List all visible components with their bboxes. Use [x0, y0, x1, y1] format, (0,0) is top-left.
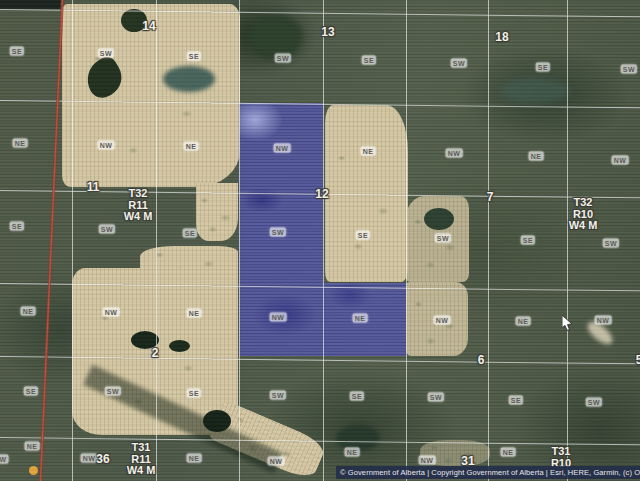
section-number: 2 — [152, 347, 159, 359]
quarter-section-label: SE — [187, 389, 201, 398]
quarter-section-label: SW — [270, 391, 286, 400]
quarter-section-label: NE — [345, 448, 360, 457]
quarter-section-label: NW — [612, 156, 629, 165]
quarter-section-label: NE — [187, 309, 202, 318]
quarter-section-label: NW — [81, 454, 98, 463]
quarter-section-label: SW — [275, 54, 291, 63]
quarter-section-label: NW — [419, 456, 436, 465]
quarter-section-label: NW — [434, 316, 451, 325]
satellite-map-viewport[interactable]: SESWSESWSESWSESWNENWNENWNENWNENWSESWSESW… — [0, 0, 640, 481]
quarter-section-label: SW — [98, 49, 114, 58]
section-number: 7 — [487, 191, 494, 203]
survey-red-line — [39, 0, 64, 481]
quarter-section-label: SE — [521, 236, 535, 245]
township-range-label: T32 R10 W4 M — [569, 197, 598, 232]
quarter-section-label: NW — [274, 144, 291, 153]
quarter-section-label: W — [0, 455, 9, 464]
quarter-section-label: SW — [428, 393, 444, 402]
quarter-section-label: SE — [356, 231, 370, 240]
poi-dot — [29, 466, 38, 475]
quarter-section-label: NE — [184, 142, 199, 151]
grid-line-vertical — [567, 0, 568, 481]
township-range-label: T31 R11 W4 M — [127, 442, 156, 477]
quarter-section-label: NW — [103, 308, 120, 317]
grid-line-vertical — [156, 0, 157, 481]
section-number: 18 — [495, 31, 508, 43]
quarter-section-label: SW — [603, 239, 619, 248]
quarter-section-label: NE — [353, 314, 368, 323]
quarter-section-label: SW — [586, 398, 602, 407]
township-range-label: T32 R11 W4 M — [124, 188, 153, 223]
quarter-section-label: NW — [98, 141, 115, 150]
dark-corner — [0, 0, 62, 9]
section-number: 5 — [636, 354, 640, 366]
quarter-section-label: NW — [446, 149, 463, 158]
attribution-bar: © Government of Alberta | Copyright Gove… — [336, 466, 640, 479]
slough — [500, 78, 570, 104]
quarter-section-label: SE — [350, 392, 364, 401]
attribution-text: © Government of Alberta | Copyright Gove… — [340, 468, 640, 477]
section-number: 13 — [321, 26, 334, 38]
section-number: 12 — [315, 188, 328, 200]
quarter-section-label: SE — [509, 396, 523, 405]
quarter-section-label: NE — [187, 454, 202, 463]
quarter-section-label: SW — [621, 65, 637, 74]
grid-line-vertical — [406, 0, 407, 481]
quarter-section-label: NW — [268, 457, 285, 466]
quarter-section-label: NW — [595, 316, 612, 325]
quarter-section-label: NE — [516, 317, 531, 326]
quarter-section-label: SW — [451, 59, 467, 68]
grid-line-vertical — [488, 0, 489, 481]
quarter-section-label: SW — [99, 225, 115, 234]
grid-line-vertical — [72, 0, 73, 481]
quarter-section-label: NE — [25, 442, 40, 451]
grid-line-vertical — [239, 0, 240, 481]
quarter-section-label: NE — [361, 147, 376, 156]
grid-line-horizontal — [0, 437, 640, 445]
quarter-section-label: SE — [10, 47, 24, 56]
quarter-section-label: SW — [270, 228, 286, 237]
section-number: 6 — [478, 354, 485, 366]
quarter-section-label: SE — [24, 387, 38, 396]
section-number: 36 — [96, 453, 109, 465]
quarter-section-label: NE — [529, 152, 544, 161]
quarter-section-label: SW — [435, 234, 451, 243]
grid-line-vertical — [323, 0, 324, 481]
quarter-section-label: SE — [362, 56, 376, 65]
slough — [169, 340, 190, 352]
section-number: 11 — [87, 181, 100, 193]
quarter-section-label: NW — [270, 313, 287, 322]
slough — [163, 66, 215, 92]
quarter-section-label: SE — [536, 63, 550, 72]
quarter-section-label: SW — [105, 387, 121, 396]
quarter-section-label: SE — [183, 229, 197, 238]
section-number: 14 — [142, 20, 155, 32]
quarter-section-label: SE — [10, 222, 24, 231]
quarter-section-label: SE — [187, 52, 201, 61]
quarter-section-label: NE — [21, 307, 36, 316]
slough — [424, 208, 454, 230]
mouse-cursor — [562, 315, 573, 332]
quarter-section-label: NE — [13, 139, 28, 148]
quarter-section-label: NE — [501, 448, 516, 457]
